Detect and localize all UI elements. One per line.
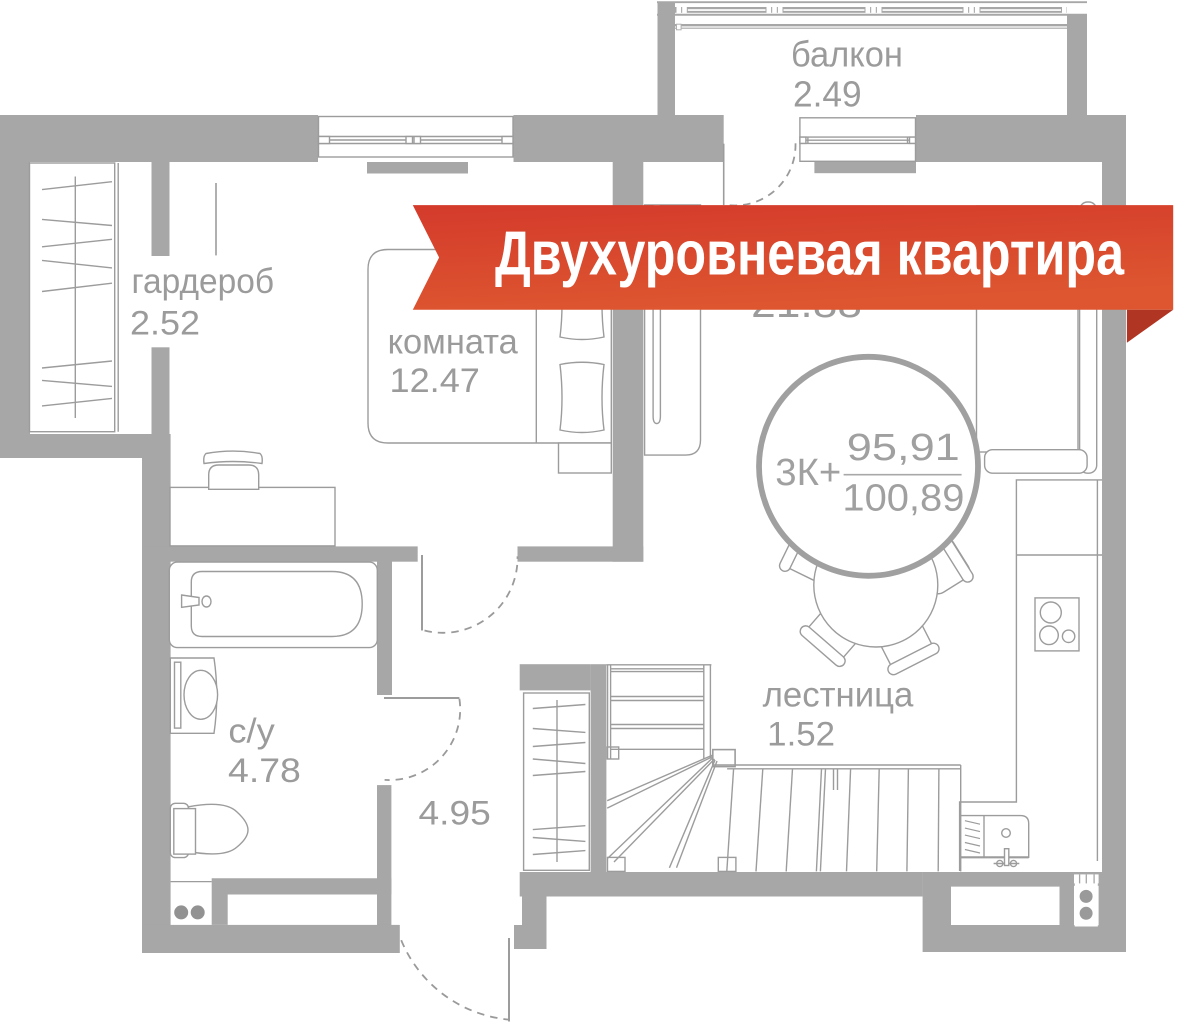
svg-text:гардероб: гардероб [132, 262, 275, 301]
svg-text:с/у: с/у [228, 712, 274, 750]
svg-text:4.78: 4.78 [228, 752, 301, 790]
svg-text:2.49: 2.49 [793, 73, 862, 114]
svg-text:комната: комната [388, 323, 519, 362]
svg-text:лестница: лестница [763, 676, 914, 715]
svg-text:12.47: 12.47 [390, 362, 480, 400]
svg-text:95,91: 95,91 [847, 427, 960, 469]
svg-text:100,89: 100,89 [842, 478, 964, 520]
svg-text:2.52: 2.52 [130, 304, 200, 342]
svg-text:балкон: балкон [791, 34, 903, 75]
svg-text:1.52: 1.52 [767, 716, 835, 754]
svg-text:Двухуровневая квартира: Двухуровневая квартира [495, 220, 1124, 289]
svg-text:3К+: 3К+ [775, 452, 841, 494]
svg-text:4.95: 4.95 [419, 795, 491, 833]
